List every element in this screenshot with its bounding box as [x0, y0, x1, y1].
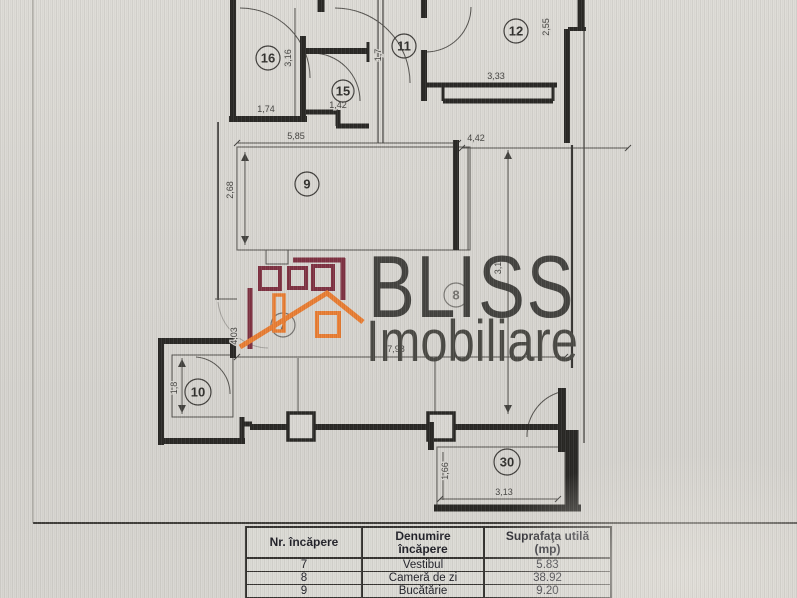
table-header-row: Nr. încăpere Denumire încăpere Suprafaţa…: [247, 528, 610, 559]
room-label-16: 16: [256, 46, 280, 70]
cell-room-name: Cameră de zi: [361, 572, 485, 584]
dim-1-7: 1,7: [373, 49, 383, 62]
room-11-number: 11: [397, 39, 411, 54]
dim-1-8: 1,8: [169, 382, 179, 395]
dim-4-42: 4,42: [467, 133, 485, 143]
room-10-number: 10: [191, 385, 205, 400]
header-denumire-line1: Denumire: [363, 530, 483, 543]
dim-3-16: 3,16: [283, 49, 293, 67]
room-schedule-table: Nr. încăpere Denumire încăpere Suprafaţa…: [245, 526, 612, 598]
scanned-floor-plan-page: 5,85 4,42 1,74 3,16 1,42 1,7 3,33 2,55 2…: [0, 0, 797, 598]
bliss-logo: BLISS Imobiliare: [240, 237, 578, 374]
cell-room-area: 38.92: [485, 572, 610, 584]
cell-room-area: 5.83: [485, 559, 610, 571]
dim-2-68: 2,68: [225, 181, 235, 199]
table-row: 8 Cameră de zi 38.92: [247, 572, 610, 585]
header-suprafata-line1: Suprafaţa utilă: [485, 530, 610, 543]
cell-room-name: Bucătărie: [361, 585, 485, 597]
dim-3-33: 3,33: [487, 71, 505, 81]
table-row: 7 Vestibul 5.83: [247, 559, 610, 572]
room-label-11: 11: [392, 34, 416, 58]
header-nr-text: Nr. încăpere: [247, 536, 361, 549]
cell-room-nr: 7: [247, 559, 361, 571]
table-header-nr: Nr. încăpere: [247, 528, 361, 557]
dim-1-74: 1,74: [257, 104, 275, 114]
cell-room-nr: 8: [247, 572, 361, 584]
table-header-denumire: Denumire încăpere: [361, 528, 485, 557]
dim-5-85: 5,85: [287, 131, 305, 141]
room-30-number: 30: [500, 455, 514, 470]
room-label-9: 9: [295, 172, 319, 196]
logo-house-mark: [240, 293, 363, 347]
room-label-12: 12: [504, 19, 528, 43]
room-15-number: 15: [336, 84, 350, 99]
dim-3-13: 3,13: [495, 487, 513, 497]
floor-plan-drawing: 5,85 4,42 1,74 3,16 1,42 1,7 3,33 2,55 2…: [0, 0, 797, 598]
cell-room-name: Vestibul: [361, 559, 485, 571]
dim-1-66: 1,66: [440, 462, 450, 480]
header-suprafata-line2: (mp): [485, 543, 610, 556]
header-denumire-line2: încăpere: [363, 543, 483, 556]
cell-room-nr: 9: [247, 585, 361, 597]
room-16-number: 16: [261, 51, 275, 66]
logo-brand-subtitle: Imobiliare: [366, 309, 578, 374]
room-label-15: 15: [332, 80, 354, 102]
room-label-30: 30: [494, 449, 520, 475]
room-label-10: 10: [185, 379, 211, 405]
cell-room-area: 9.20: [485, 585, 610, 597]
room-9-number: 9: [303, 177, 310, 192]
dim-2-55: 2,55: [541, 18, 551, 36]
dim-4-03: 4,03: [229, 327, 239, 345]
table-header-suprafata: Suprafaţa utilă (mp): [485, 528, 610, 557]
table-row: 9 Bucătărie 9.20: [247, 585, 610, 597]
room-12-number: 12: [509, 24, 523, 39]
